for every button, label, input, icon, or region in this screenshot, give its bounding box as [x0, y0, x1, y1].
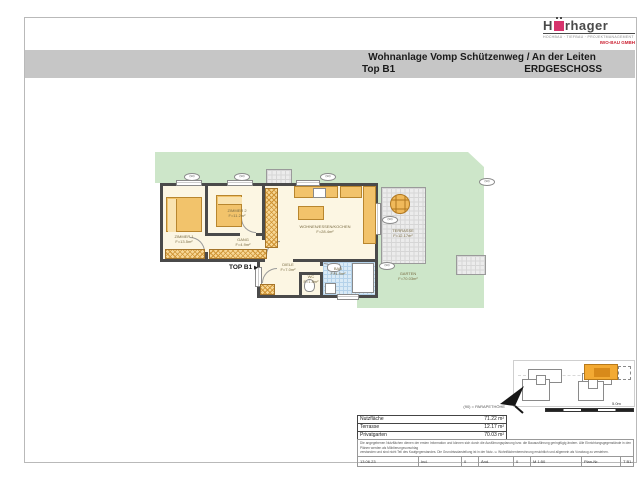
parapet-badge: (90) — [479, 178, 495, 186]
logo-tagline: HOCHBAU · TIEFBAU · PROJEKTMANAGEMENT — [543, 35, 635, 39]
parapet-badge: (90) — [379, 262, 395, 270]
room-area: F=1.8m² — [300, 279, 322, 284]
room-area: F=13.5m² — [166, 239, 202, 244]
brand-prefix: H — [543, 18, 553, 33]
room-area: F=4.9m² — [326, 271, 350, 276]
room-area: F=12.17m² — [384, 233, 422, 238]
wall — [205, 186, 208, 236]
terrace-label: TERRASSE F=12.17m² — [384, 228, 422, 238]
row-value: 71.22 m² — [484, 416, 504, 423]
entrance-unit-label: TOP B1 — [229, 264, 252, 271]
logo-subbrand: IWO-BAU GMBH — [543, 40, 635, 45]
scale-bar — [545, 408, 634, 412]
neighbor-terrace — [456, 255, 486, 275]
room-area: F=11.2m² — [219, 213, 255, 218]
room-label-wohnen: WOHNEN/ESSEN/KOCHEN F=28.4m² — [290, 224, 360, 234]
bed-pillow — [168, 199, 177, 232]
hall-cabinet — [260, 284, 275, 295]
room-label-zimmer1: ZIMMER 1 F=13.5m² — [166, 234, 202, 244]
room-label-diele: DIELE F=7.0m² — [276, 262, 300, 272]
parapet-badge: (90) — [234, 173, 250, 181]
unit-label: Top B1 — [362, 64, 395, 75]
title-block-header: Wohnanlage Vomp Schützenweg / An der Lei… — [362, 52, 602, 75]
disclaimer-line: verstanden und sind nicht Teil des Kaufg… — [360, 450, 631, 455]
brand-suffix: rhager — [565, 18, 608, 33]
bed — [166, 197, 202, 232]
logo-divider — [543, 33, 635, 34]
sofa — [340, 186, 362, 198]
company-logo: Hrhager HOCHBAU · TIEFBAU · PROJEKTMANAG… — [543, 20, 635, 45]
plan-date: 13.06.23 — [358, 457, 419, 466]
floor-label: ERDGESCHOSS — [524, 64, 602, 75]
room-label-gang: GANG F=4.9m² — [228, 237, 258, 247]
legend-note: (90) = PARAPETHÖHE — [400, 404, 505, 409]
room-area: F=7.0m² — [276, 267, 300, 272]
room-label-bad: BAD F=4.9m² — [326, 266, 350, 276]
room-label-garten: GARTEN F=70.03m² — [388, 271, 428, 281]
plan-scale: M 1:50 — [531, 457, 582, 466]
title-block: Die angegebenen Nutzflächen dienen der e… — [357, 439, 634, 467]
bed-pillow — [218, 197, 242, 205]
row-label: Terrasse — [360, 424, 379, 431]
index-value: 0 — [462, 457, 479, 466]
wall — [205, 233, 240, 236]
brand-name: Hrhager — [543, 20, 635, 32]
room-area: F=70.03m² — [388, 276, 428, 281]
wardrobe — [165, 249, 205, 259]
entrance-marker: TOP B1 ▶ — [229, 264, 258, 271]
entrance-arrow-icon: ▶ — [254, 265, 258, 271]
plan-sheet: Hrhager HOCHBAU · TIEFBAU · PROJEKTMANAG… — [0, 0, 640, 480]
room-area: F=28.4m² — [290, 229, 360, 234]
tall-cabinet — [265, 188, 278, 248]
area-summary-table: Nutzfläche 71.22 m² Terrasse 12.17 m² Pr… — [357, 415, 507, 440]
site-key-plan — [513, 360, 635, 407]
bathtub — [352, 263, 374, 293]
building-outline — [618, 366, 631, 380]
terrace: TERRASSE F=12.17m² — [381, 187, 426, 264]
room-label-zimmer2: ZIMMER 2 F=11.2m² — [219, 208, 255, 218]
window — [337, 294, 359, 300]
table-row: Nutzfläche 71.22 m² — [358, 416, 506, 424]
table-row: Terrasse 12.17 m² — [358, 424, 506, 432]
unit-highlight — [584, 364, 618, 380]
scale-bar-label: 5.0m — [612, 401, 621, 406]
sofa — [363, 186, 376, 244]
kitchen-sink — [313, 188, 326, 198]
index-label: Ind. — [419, 457, 462, 466]
row-label: Nutzfläche — [360, 416, 384, 423]
kitchen-counter — [294, 186, 338, 198]
unit-highlight-core — [594, 368, 610, 377]
building-core — [588, 379, 598, 389]
brand-umlaut-square-icon — [554, 21, 564, 31]
parapet-badge: (90) — [184, 173, 200, 181]
project-title: Wohnanlage Vomp Schützenweg / An der Lei… — [362, 52, 602, 63]
plan-number-label: Plan-Nr. — [582, 457, 621, 466]
revision-label: Änd. — [479, 457, 514, 466]
title-block-row: 13.06.23 Ind. 0 Änd. 0 M 1:50 Plan-Nr. T… — [358, 456, 633, 466]
row-label: Privatgarten — [360, 432, 387, 439]
disclaimer-line: Die angegebenen Nutzflächen dienen der e… — [360, 441, 631, 450]
revision-value: 0 — [514, 457, 531, 466]
building-core — [536, 375, 546, 385]
row-value: 12.17 m² — [484, 424, 504, 431]
terrace-table-icon — [390, 194, 410, 214]
disclaimer-text: Die angegebenen Nutzflächen dienen der e… — [358, 440, 633, 456]
room-area: F=4.9m² — [228, 242, 258, 247]
parapet-badge: (90) — [320, 173, 336, 181]
wall — [205, 252, 208, 259]
row-value: 70.03 m² — [484, 432, 504, 439]
dining-table — [298, 206, 324, 220]
plan-number-value: T B1-0-3 — [621, 457, 633, 466]
table-row: Privatgarten 70.03 m² — [358, 432, 506, 439]
wardrobe — [209, 249, 267, 259]
room-label-wc: WC F=1.8m² — [300, 274, 322, 284]
washing-machine — [325, 283, 336, 294]
parapet-badge: (90) — [382, 216, 398, 224]
window — [176, 180, 202, 186]
north-arrow-icon — [500, 386, 526, 414]
